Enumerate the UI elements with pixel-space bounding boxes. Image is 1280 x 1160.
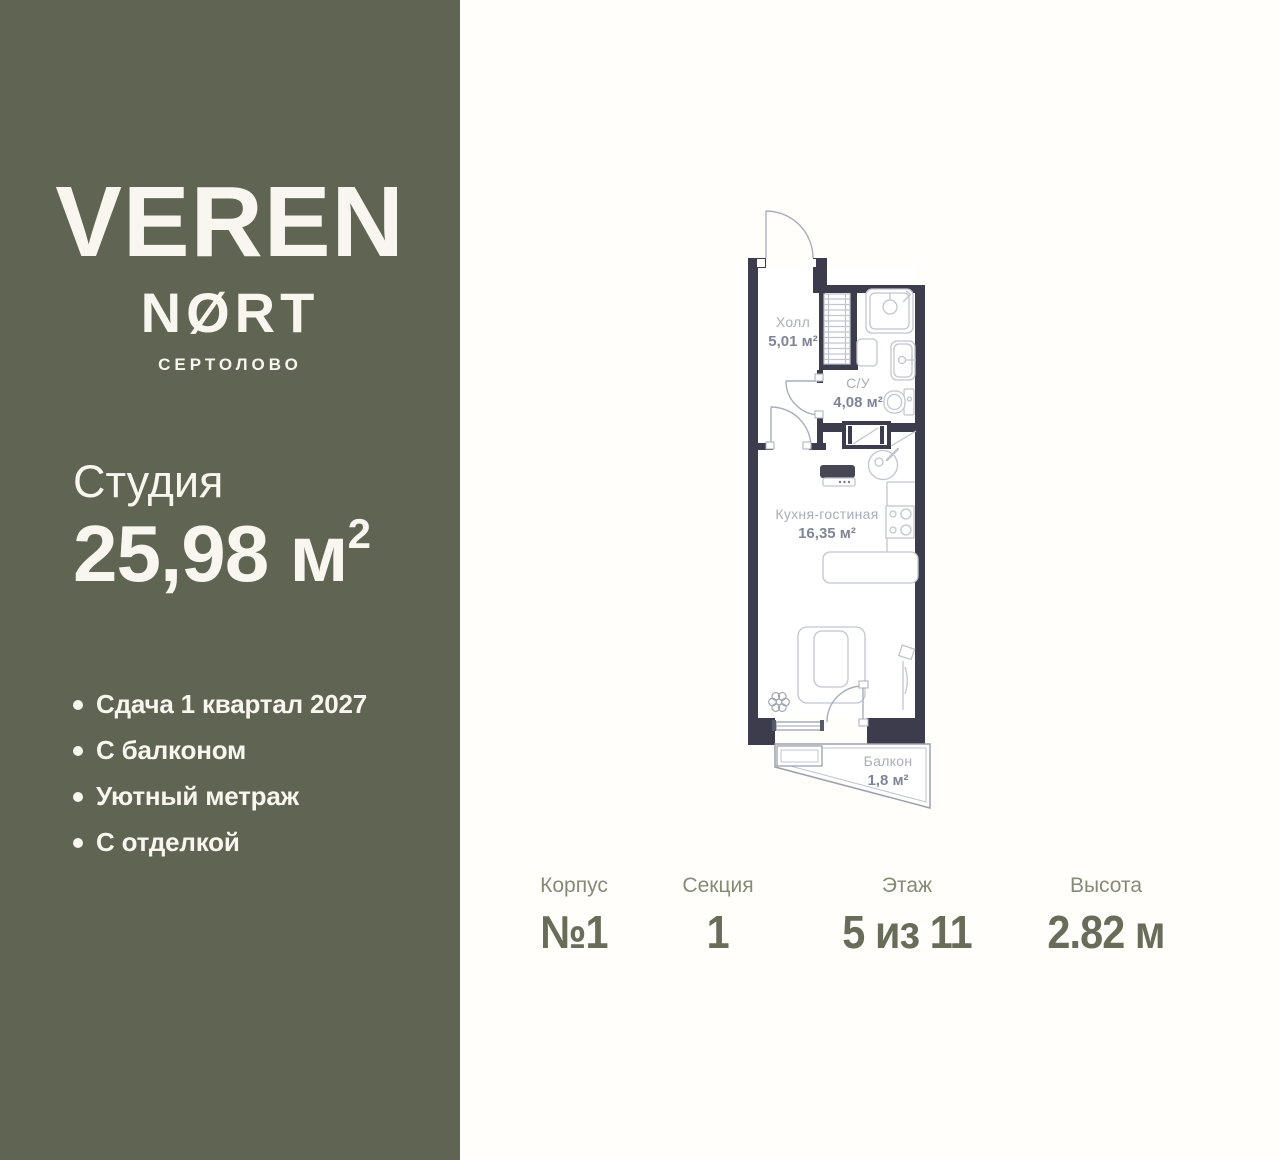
room-name: Балкон bbox=[864, 753, 913, 769]
stat-label: Высота bbox=[1041, 874, 1171, 898]
room-name: Холл bbox=[768, 314, 817, 330]
stat-value-text: 1 bbox=[707, 910, 729, 954]
stat-ceiling-height: Высота 2.82 м bbox=[1041, 874, 1171, 954]
stat-label: Секция bbox=[682, 874, 753, 898]
floor-plan bbox=[0, 0, 1280, 1160]
room-label-bathroom: С/У 4,08 м² bbox=[833, 375, 882, 412]
toilet bbox=[884, 389, 914, 415]
washing-machine bbox=[844, 423, 889, 447]
dining-table bbox=[823, 552, 918, 583]
stat-building: Корпус №1 bbox=[537, 874, 612, 954]
bathroom-cabinet bbox=[857, 339, 877, 366]
stove bbox=[886, 506, 914, 538]
bathtub bbox=[891, 341, 916, 380]
room-area: 5,01 м² bbox=[768, 333, 817, 351]
stat-value: 5 из 11 bbox=[835, 910, 979, 954]
room-name: С/У bbox=[833, 375, 882, 391]
stat-value: 2.82 м bbox=[1041, 910, 1171, 954]
stat-floor: Этаж 5 из 11 bbox=[835, 874, 979, 954]
room-label-hall: Холл 5,01 м² bbox=[768, 314, 817, 351]
bed bbox=[798, 627, 865, 703]
room-label-balcony: Балкон 1,8 м² bbox=[864, 753, 913, 790]
stat-label: Корпус bbox=[537, 874, 612, 898]
wardrobe bbox=[824, 294, 850, 364]
stat-value-text: 2.82 м bbox=[1047, 910, 1164, 954]
room-label-kitchen-living: Кухня-гостиная 16,35 м² bbox=[775, 506, 878, 543]
window bbox=[772, 720, 824, 731]
kitchen-cabinet-block bbox=[820, 465, 855, 486]
stat-value-text: №1 bbox=[540, 910, 607, 954]
stat-value-text: 5 из 11 bbox=[842, 910, 972, 954]
stat-section: Секция 1 bbox=[682, 874, 753, 954]
room-area: 4,08 м² bbox=[833, 394, 882, 412]
room-name: Кухня-гостиная bbox=[775, 506, 878, 522]
apartment-listing-card: VEREN NØRT СЕРТОЛОВО Студия 25,98 м2 Сда… bbox=[0, 0, 1280, 1160]
stat-value: 1 bbox=[682, 910, 753, 954]
room-area: 16,35 м² bbox=[775, 525, 878, 543]
entry-door bbox=[766, 211, 813, 258]
bathroom-sink bbox=[866, 289, 913, 333]
stat-label: Этаж bbox=[835, 874, 979, 898]
room-area: 1,8 м² bbox=[864, 772, 913, 790]
stat-value: №1 bbox=[537, 910, 612, 954]
